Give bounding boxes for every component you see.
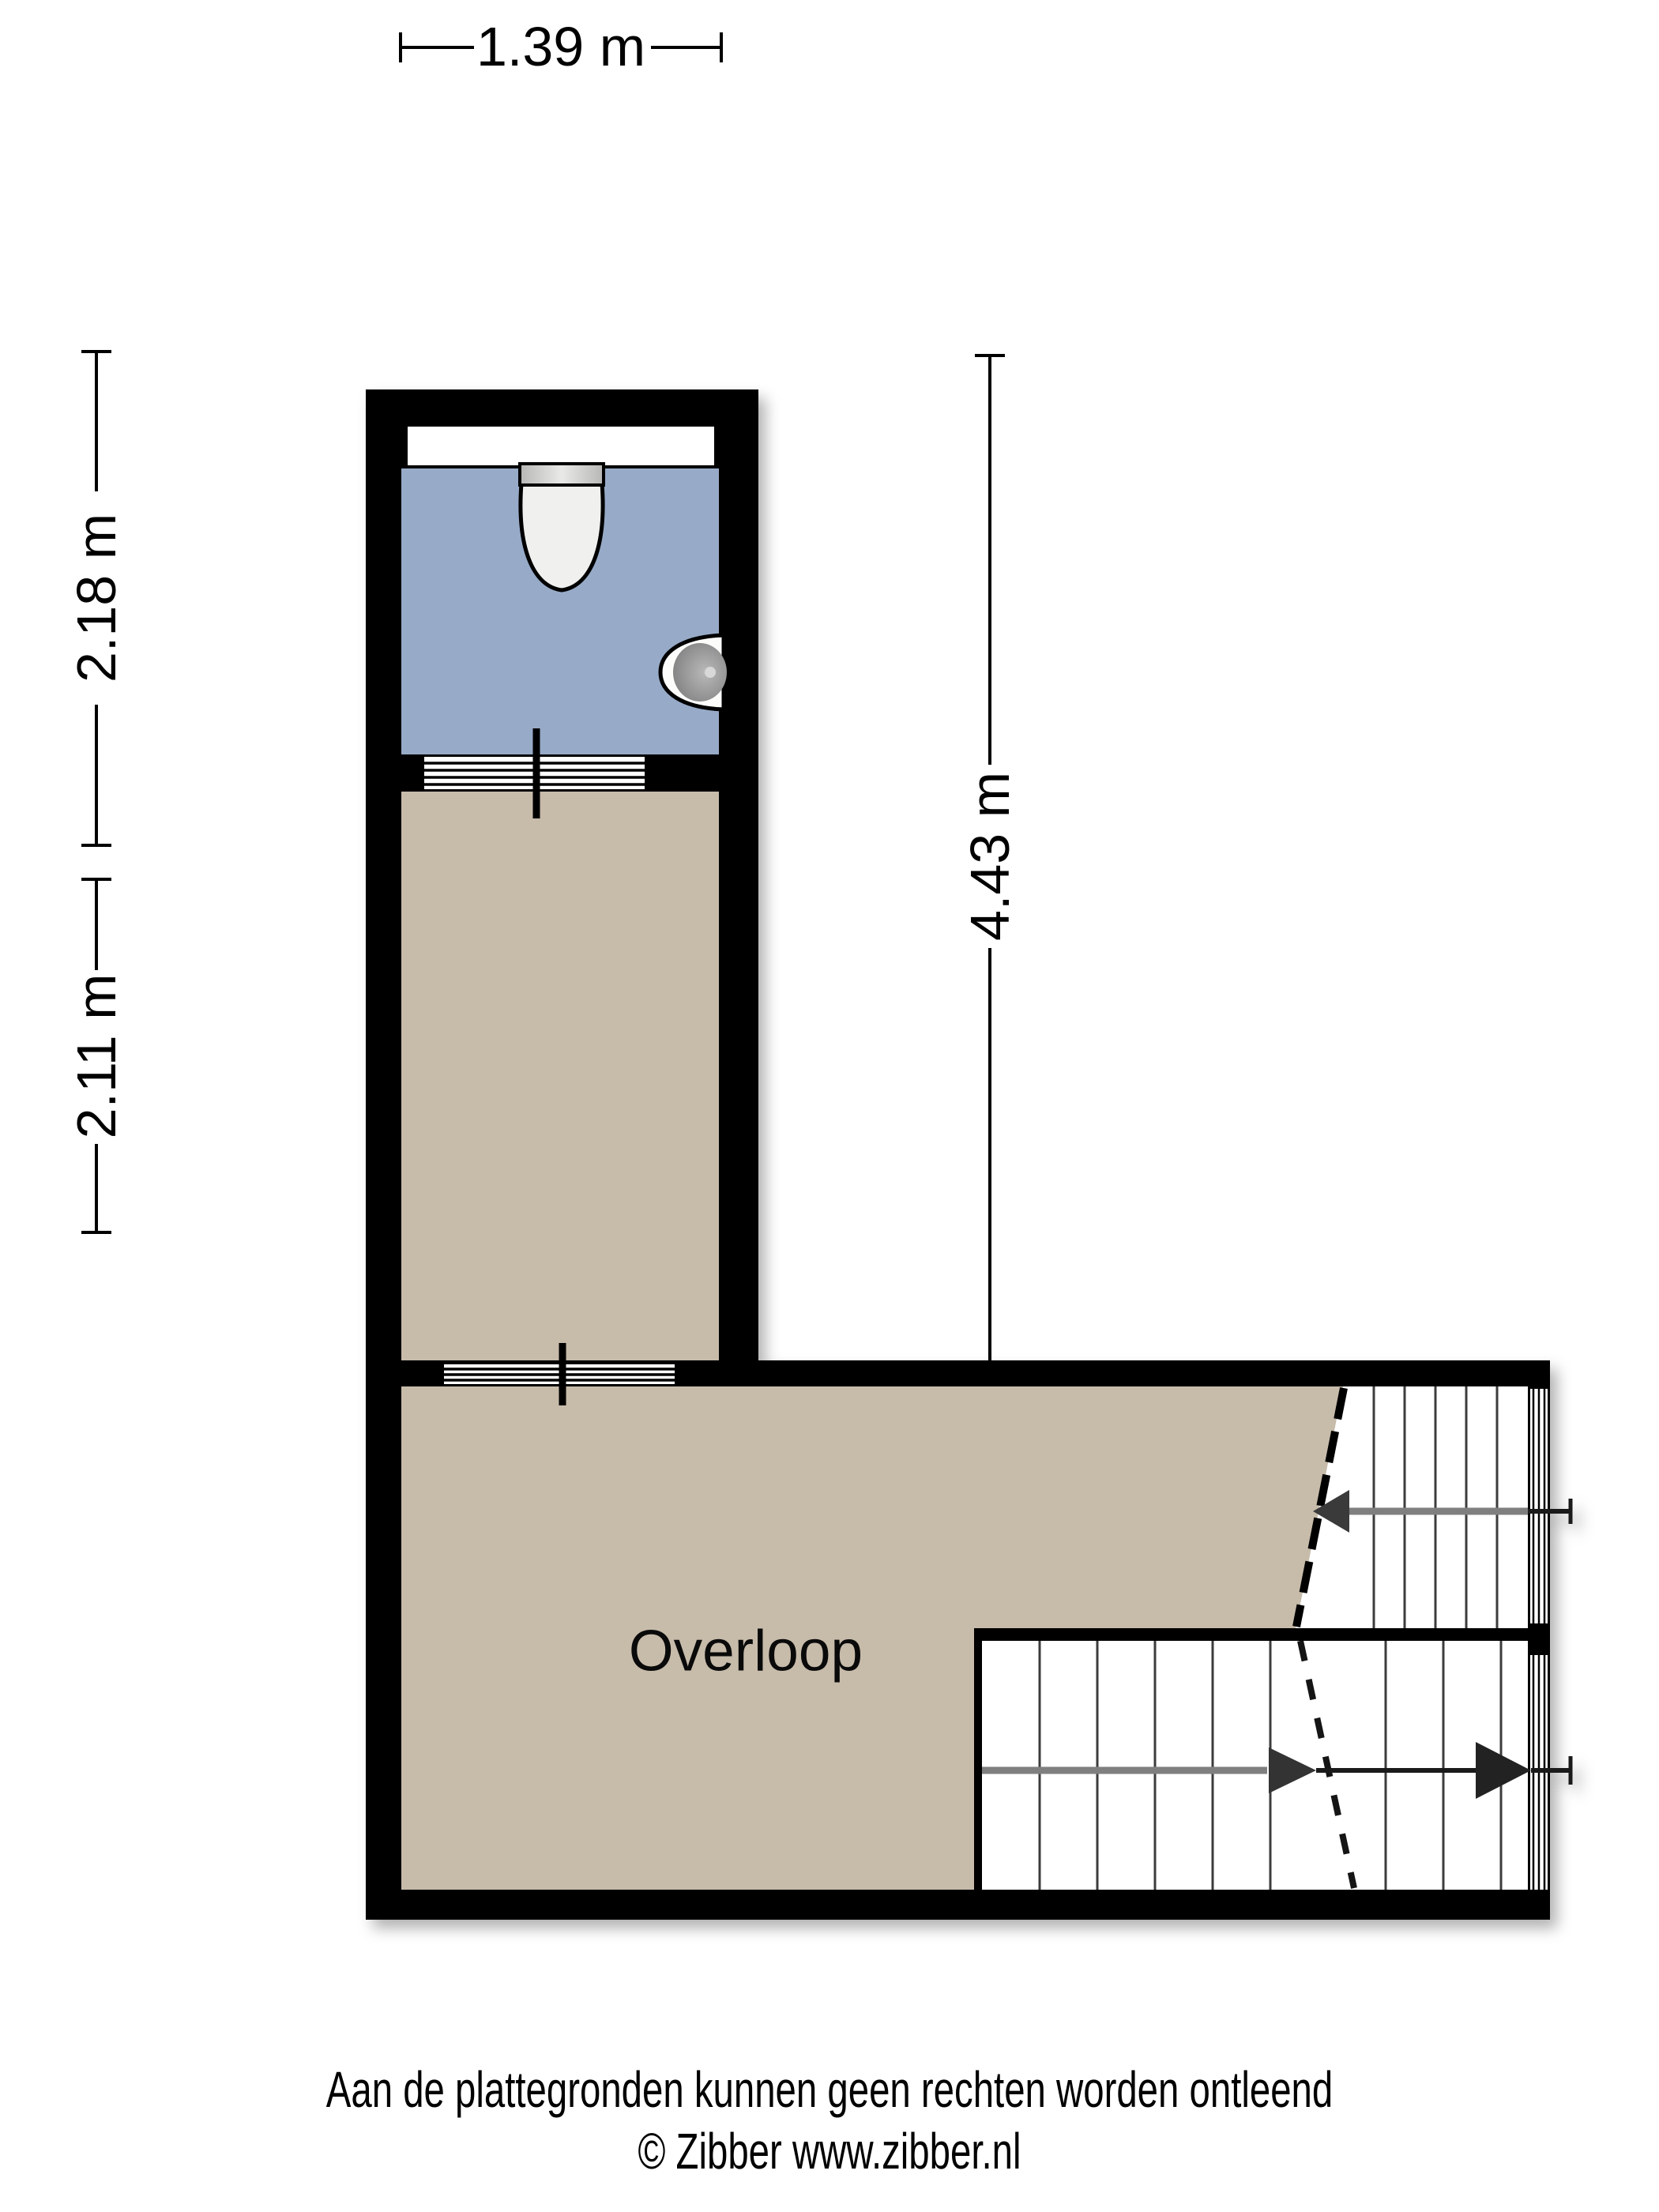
dimension-label-toilet-height: 2.18 m — [69, 513, 124, 683]
dimension-label-hall-height: 2.11 m — [69, 974, 124, 1139]
dimension-label-top-width: 1.39 m — [476, 19, 645, 74]
floorplan-page: 1.39 m 2.18 m 2.11 m 4.43 m Overloop Aan… — [0, 0, 1659, 2212]
disclaimer-text: Aan de plattegronden kunnen geen rechten… — [216, 2062, 1443, 2117]
dimension-label-total-height: 4.43 m — [962, 772, 1018, 941]
room-label-overloop: Overloop — [629, 1623, 863, 1680]
dimension-lines — [0, 0, 1659, 2212]
copyright-text: © Zibber www.zibber.nl — [216, 2124, 1443, 2179]
